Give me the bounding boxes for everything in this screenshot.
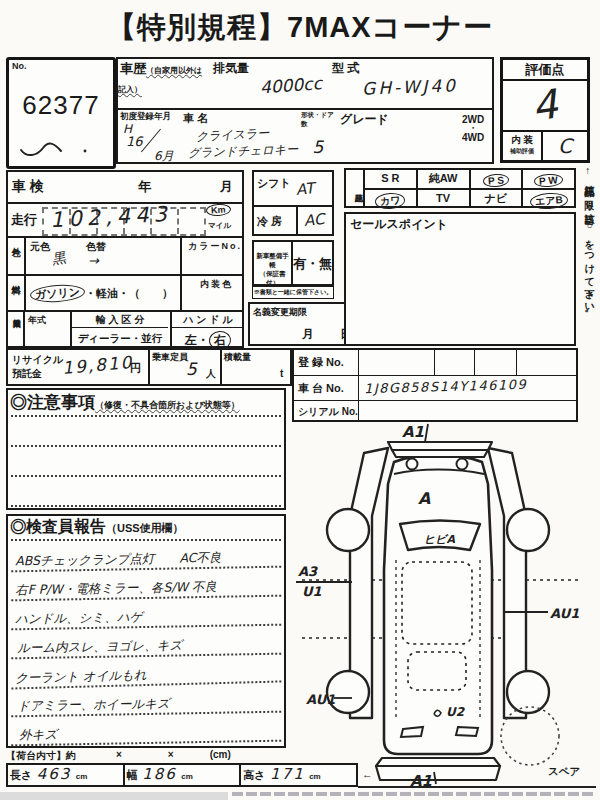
fuel-row: 燃料 ガソリン・軽油・（ ） 内装色: [8, 276, 242, 312]
handle-dot: ・: [197, 333, 209, 347]
doors-value: 5: [300, 137, 336, 157]
cargo-x2: ×: [168, 749, 174, 762]
damage-label-au1-left: AU1: [306, 692, 335, 707]
lot-number-box: No. 62377: [6, 57, 116, 169]
grade-label: グレード: [340, 111, 454, 128]
first-registration-cell: 初度登録年月 H 16 6月: [116, 108, 182, 164]
damage-label-u2: U2: [446, 705, 466, 719]
report-label: ◎検査員報告: [10, 518, 106, 535]
lot-number-label: No.: [12, 61, 27, 71]
genuine-tab: 純正品: [346, 170, 365, 206]
notes-box: ◎注意事項（修復・不具合箇所および状態等）: [6, 388, 286, 510]
divider: [24, 238, 26, 274]
model-code-cell: 型 式 GH-WJ40: [328, 57, 494, 110]
doors-label: 形状・ドア数: [301, 111, 336, 129]
side-vertical-note: ←純正品に限り該当に○をつけて下さい。: [582, 166, 596, 422]
damage-label-front-bumper: A1: [402, 423, 424, 441]
divider: [516, 350, 517, 375]
genuine-tv: TV: [418, 190, 471, 208]
damage-label-hood: A: [418, 489, 431, 508]
displacement-cell: 排気量 4000cc: [210, 57, 330, 110]
capacity-label: 乗車定員: [152, 351, 188, 364]
divider: [220, 350, 222, 384]
divider: [358, 350, 359, 375]
auction-sheet-scan: { "title": "【特別規程】7MAXコーナー", "lot": { "l…: [0, 0, 600, 800]
capacity-unit: 人: [206, 367, 216, 381]
doors-cell: 形状・ドア数 5: [300, 108, 338, 164]
rating-label: 評価点: [503, 60, 587, 81]
import-division-label: 輸 入 区 分: [72, 313, 168, 328]
exterior-color-row: 外色 元色 黒 色替 → カラーNo.: [8, 238, 242, 276]
registration-label: 登 録 No.: [298, 355, 344, 370]
base-color-label: 元色: [30, 240, 50, 254]
damage-label-u1: U1: [302, 584, 322, 599]
color-change-label: 色替: [86, 240, 106, 254]
maintenance-book-label: 新車整備手帳 （保証書付）: [254, 242, 293, 284]
mileage-row: 走行 102,443 Km マイル: [8, 204, 242, 238]
notes-rule: [11, 477, 281, 507]
report-line: ハンドル、シミ、ハゲ: [11, 597, 281, 631]
report-sub: （USS使用欄）: [106, 522, 184, 534]
fuel-other-options: ・軽油・（ ）: [85, 287, 173, 299]
load-label: 積載量: [224, 351, 251, 364]
notes-rule: [11, 447, 281, 477]
drive-cell: 2WD ・ 4WD: [454, 108, 494, 164]
shift-value: AT: [295, 179, 315, 199]
spare-label: スペア: [548, 765, 580, 777]
load-unit: t: [280, 368, 283, 379]
maintenance-book-options: 有・無: [293, 242, 332, 284]
ac-label: 冷 房: [257, 214, 282, 229]
page-title: 【特別規程】7MAXコーナー: [0, 8, 600, 48]
car-name-line2: グランドチェロキー: [188, 141, 301, 162]
signature-squiggle: [15, 140, 103, 158]
grade-cell: グレード: [336, 108, 456, 164]
report-line: 外キズ: [11, 713, 281, 747]
car-body-outline: [384, 455, 492, 754]
transfer-month: 月: [302, 326, 314, 343]
lot-number: 62377: [9, 90, 113, 121]
fuel-gasoline: ガソリン: [29, 283, 85, 304]
report-line: ドアミラー、ホイールキズ: [11, 684, 281, 718]
drive-4wd: 4WD: [454, 132, 492, 143]
ac-row: 冷 房 AC: [254, 207, 332, 236]
sales-point-box: セールスポイント: [344, 212, 576, 346]
car-name-cell: 車 名 クライスラー グランドチェロキー: [180, 108, 302, 164]
chassis-label: 車 台 No.: [298, 381, 344, 396]
shift-row: シフト AT: [254, 172, 332, 207]
book-note: ※書類と一緒に保管下さい。: [253, 287, 333, 297]
serial-row: シリアル No.: [294, 401, 576, 422]
chassis-value: 1J8G858S14Y146109: [364, 377, 527, 396]
fuel-tab: 燃料: [9, 278, 22, 310]
length-unit: cm: [76, 772, 88, 781]
mileage-label: 走行: [11, 211, 37, 229]
divider: [148, 350, 150, 384]
genuine-pw: P W: [523, 170, 574, 188]
notes-label: ◎注意事項: [10, 393, 95, 412]
displacement-value: 4000cc: [209, 73, 322, 101]
rating-box: 評価点 4 内 装 補助評価 C: [500, 57, 590, 163]
genuine-parts-grid: 純正品 S R 純AW P S P W カワ TV ナビ エアB: [344, 168, 576, 208]
drive-dot: ・: [454, 125, 492, 132]
genuine-kawa: カワ: [365, 190, 418, 208]
maintenance-book-box: 新車整備手帳 （保証書付） 有・無: [252, 240, 334, 286]
sales-point-label: セールスポイント: [350, 216, 574, 233]
cargo-label: 【荷台内寸】約: [6, 749, 76, 762]
mileage-unit-mile: マイル: [208, 221, 231, 231]
cargo-unit: (cm): [210, 749, 231, 762]
front-bumper: [388, 442, 492, 450]
cargo-dims-strip: 【荷台内寸】約 × × (cm): [6, 749, 286, 762]
width-label: 幅: [127, 769, 138, 781]
import-division-value: ディーラー・並行: [72, 332, 168, 346]
length-cell: 長さ 463 cm: [8, 765, 125, 785]
fine-print-illegible: [232, 792, 596, 796]
capacity-value: 5: [186, 359, 197, 379]
transfer-deadline-box: 名義変更期限 月 日: [248, 302, 356, 346]
width-value: 186: [142, 765, 177, 783]
shaken-row: 車検 年 月: [8, 172, 242, 204]
rating-score: 4: [503, 81, 587, 130]
mileage-unit-km: Km: [206, 203, 231, 217]
divider: [434, 350, 435, 375]
shaken-year-label: 年: [138, 178, 151, 196]
interior-color-label: 内装色: [200, 278, 233, 291]
interior-rating-row: 内 装 補助評価 C: [503, 130, 587, 162]
color-no-label: カラーNo.: [188, 240, 242, 253]
recycle-yen: 円: [130, 361, 141, 376]
left-info-table: 車検 年 月 走行 102,443 Km マイル 外色 元色 黒 色替 → カラ…: [6, 170, 244, 348]
base-color-value: 黒: [51, 249, 68, 269]
shift-label: シフト: [257, 176, 291, 191]
divider: [180, 238, 182, 274]
recycle-value: 19,810: [61, 352, 134, 378]
history-cell: 車歴（自家用以外は記入）: [116, 57, 212, 110]
genuine-sr: S R: [365, 170, 418, 188]
serial-label: シリアル No.: [298, 405, 358, 419]
import-year-label: 年式: [28, 314, 46, 327]
length-value: 463: [37, 765, 72, 783]
shift-ac-box: シフト AT 冷 房 AC: [252, 170, 334, 236]
car-damage-diagram: A1 A ヒビA A3 U1 AU1 AU1 U2 A1 スペア: [296, 420, 584, 788]
genuine-row-2: カワ TV ナビ エアB: [365, 190, 574, 208]
exterior-color-tab: 外色: [9, 240, 22, 274]
cargo-x1: ×: [116, 749, 122, 762]
notes-sub: （修復・不具合箇所および状態等）: [95, 400, 240, 410]
genuine-row-1: S R 純AW P S P W: [365, 170, 574, 190]
first-reg-year: 16: [126, 134, 143, 149]
bottom-rule: [358, 786, 596, 788]
divider: [358, 401, 359, 422]
shaken-month-label: 月: [220, 178, 233, 196]
inspector-report-box: ◎検査員報告（USS使用欄） ABSチェックランプ点灯 AC不良 右F P/W・…: [6, 514, 286, 748]
genuine-ps: P S: [471, 170, 524, 188]
interior-rating-value: C: [543, 132, 587, 162]
history-label: 車歴: [120, 61, 146, 76]
notes-rule: [11, 417, 281, 447]
divider: [296, 207, 298, 236]
registration-table: 登 録 No. 車 台 No. 1J8G858S14Y146109 シリアル N…: [292, 348, 578, 422]
registration-row: 登 録 No.: [294, 350, 576, 376]
handle-left: 左: [185, 333, 197, 347]
damage-label-a3: A3: [298, 564, 318, 579]
right-front-wheel: [507, 509, 549, 551]
genuine-airbag: エアB: [523, 190, 574, 208]
height-label: 高さ: [243, 769, 265, 781]
shaken-label: 車検: [12, 178, 48, 196]
report-line: 右F P/W・電格ミラー、各S/W 不良: [11, 568, 281, 602]
divider: [358, 376, 359, 400]
genuine-aw: 純AW: [418, 170, 471, 188]
genuine-navi: ナビ: [471, 190, 524, 208]
damage-label-windshield: ヒビA: [424, 533, 456, 546]
handle-label: ハ ン ド ル: [172, 313, 244, 328]
chassis-row: 車 台 No. 1J8G858S14Y146109: [294, 376, 576, 401]
width-cell: 幅 186 cm: [125, 765, 242, 785]
divider: [24, 276, 26, 310]
first-reg-month: 6月: [154, 148, 174, 165]
left-front-wheel: [327, 509, 369, 551]
width-unit: cm: [181, 772, 193, 781]
divider: [474, 350, 475, 375]
length-label: 長さ: [10, 769, 32, 781]
model-code-value: GH-WJ40: [328, 74, 493, 100]
fuel-options: ガソリン・軽油・（ ）: [30, 285, 173, 302]
recycle-label: リサイクル 預託金: [12, 353, 63, 381]
divider: [180, 276, 182, 310]
recycle-row: リサイクル 預託金 19,810 円 乗車定員 5 人 積載量 t: [6, 348, 292, 386]
interior-rating-label: 内 装 補助評価: [503, 132, 543, 162]
damage-label-au1-right: AU1: [550, 606, 579, 621]
transfer-label: 名義変更期限: [253, 306, 307, 319]
color-change-arrow: →: [88, 253, 99, 268]
book-note-strip: ※書類と一緒に保管下さい。: [252, 286, 334, 299]
rear-bumper: [376, 758, 500, 766]
report-line: ABSチェックランプ点灯 AC不良: [11, 539, 281, 573]
scan-artifact-bar: [0, 792, 228, 800]
ac-value: AC: [303, 210, 325, 230]
